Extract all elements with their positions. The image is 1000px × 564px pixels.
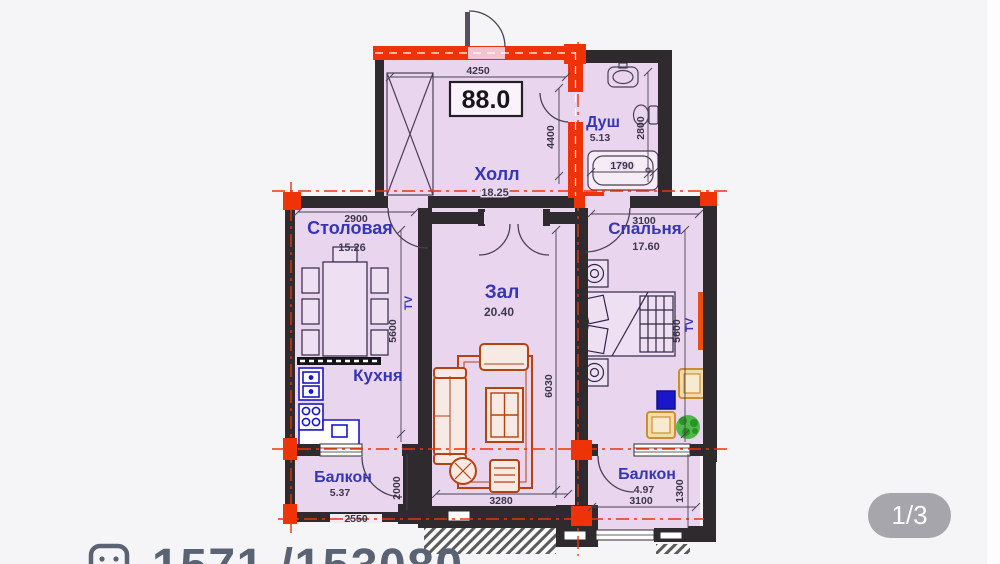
dim-balcony-left-width: 2550 — [344, 513, 368, 525]
dim-balcony-right-depth: 1300 — [674, 479, 686, 503]
floor-plan-svg: 88.0 Холл 18.25 Душ 5.13 Столовая 15.26 … — [0, 0, 1000, 564]
tv-label-living: TV — [403, 295, 415, 310]
dim-hall-width: 4250 — [466, 65, 490, 77]
dim-living-depth: 6030 — [543, 374, 555, 398]
listing-title: 1571 /153080 — [88, 543, 464, 564]
room-label-living: Зал — [485, 282, 520, 303]
dim-shower-tub: 1790 — [610, 160, 634, 172]
dim-hall-depth: 4400 — [545, 125, 557, 149]
room-label-hall: Холл — [474, 164, 519, 184]
dim-living-width: 3280 — [489, 495, 513, 507]
tv-marker-bedroom — [698, 292, 703, 350]
dim-dining-depth: 5600 — [387, 319, 399, 343]
listing-number: 1571 /153080 — [152, 543, 464, 564]
dim-balcony-right-width: 3100 — [629, 495, 653, 507]
entrance-door-arc — [469, 11, 505, 47]
total-area-value: 88.0 — [462, 86, 511, 114]
dim-balcony-left-depth: 2000 — [391, 476, 403, 500]
room-label-balcony-left: Балкон — [314, 469, 372, 486]
dim-shower-depth: 2800 — [635, 116, 647, 140]
plant — [676, 415, 700, 439]
photo-edge-strip — [987, 0, 1000, 564]
phone-icon — [88, 543, 130, 564]
kitchen-counter-strip — [297, 357, 381, 365]
room-label-balcony-right: Балкон — [618, 466, 676, 483]
photo-counter-badge: 1/3 — [868, 493, 951, 538]
room-area-hall: 18.25 — [481, 187, 509, 199]
photo-counter-text: 1/3 — [891, 500, 927, 531]
dim-bedroom-width: 3100 — [632, 215, 656, 227]
room-area-bedroom: 17.60 — [632, 241, 660, 253]
blue-stool — [657, 391, 675, 409]
tv-label-bedroom: TV — [684, 317, 696, 332]
room-area-shower: 5.13 — [590, 132, 611, 144]
dim-bedroom-depth: 5600 — [671, 319, 683, 343]
room-label-kitchen: Кухня — [353, 366, 403, 385]
total-area-box: 88.0 — [450, 82, 522, 116]
floorplan-image[interactable]: 88.0 Холл 18.25 Душ 5.13 Столовая 15.26 … — [0, 0, 1000, 564]
room-area-dining: 15.26 — [338, 242, 366, 254]
room-area-balcony-left: 5.37 — [330, 487, 351, 499]
dim-dining-width: 2900 — [344, 213, 368, 225]
entrance-door-leaf — [465, 12, 470, 46]
room-label-shower: Душ — [586, 114, 620, 131]
hatch-right — [656, 544, 690, 554]
room-area-living: 20.40 — [484, 305, 514, 319]
